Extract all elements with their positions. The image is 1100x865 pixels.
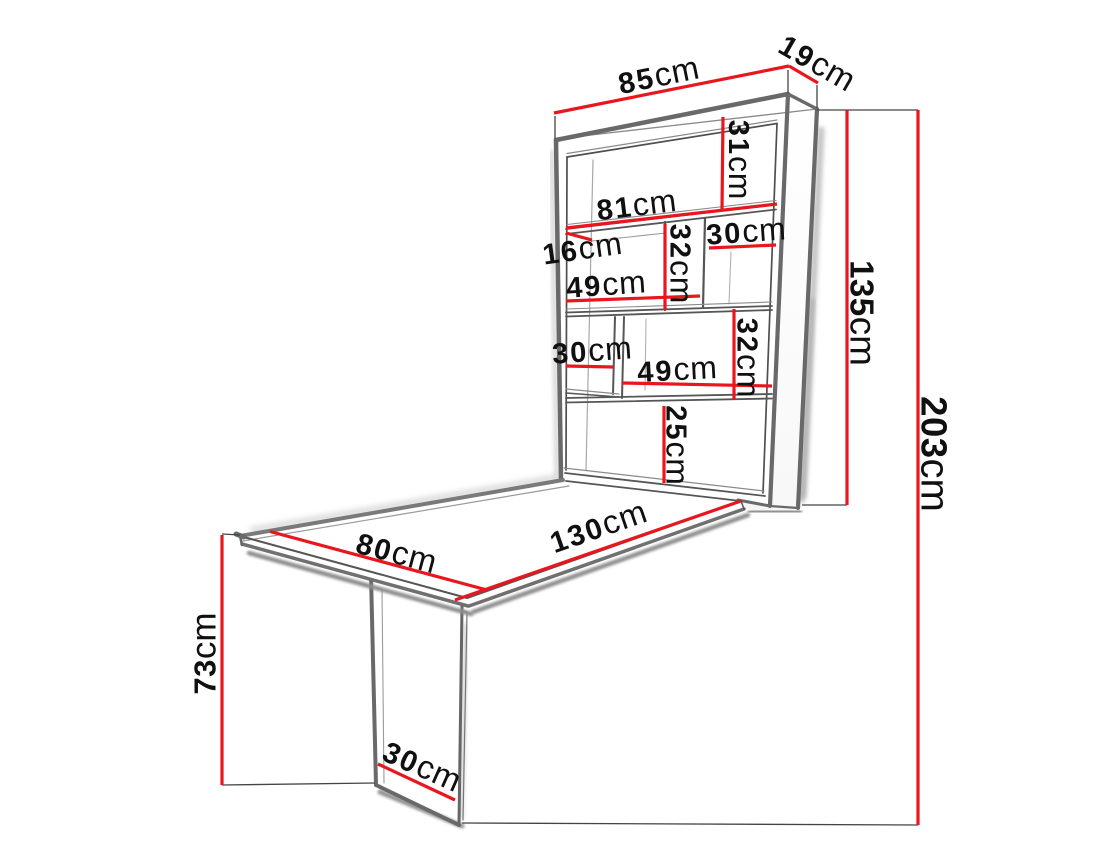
svg-text:19cm: 19cm <box>773 25 863 98</box>
svg-text:203cm: 203cm <box>913 396 957 512</box>
svg-text:32cm: 32cm <box>731 318 767 399</box>
svg-text:32cm: 32cm <box>664 224 700 305</box>
svg-text:135cm: 135cm <box>843 260 884 366</box>
svg-text:25cm: 25cm <box>660 405 696 486</box>
svg-text:85cm: 85cm <box>615 48 703 101</box>
svg-text:31cm: 31cm <box>722 120 758 201</box>
svg-text:73cm: 73cm <box>185 612 224 694</box>
